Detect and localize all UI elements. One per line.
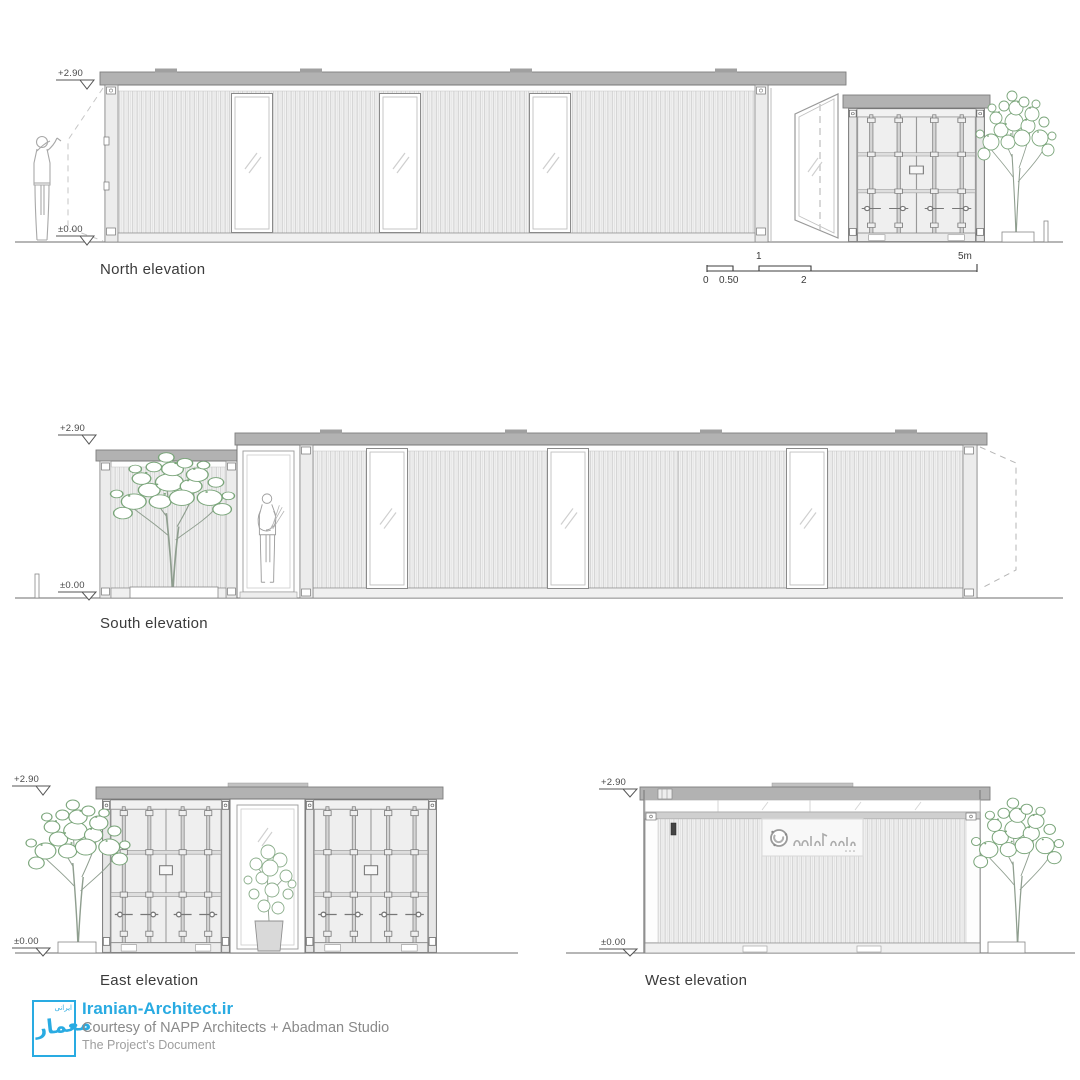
west-lock-detail [671, 823, 676, 835]
west-roof-top-tab [772, 783, 853, 787]
east-container-doors-right [306, 800, 437, 953]
west-level-markers [599, 789, 637, 956]
elevation-linework [0, 0, 1080, 1080]
south-tree-planter [130, 587, 218, 598]
east-level-ground-text: ±0.00 [14, 936, 39, 947]
west-elevation-label: West elevation [645, 972, 747, 989]
west-level-top-text: +2.90 [601, 777, 626, 788]
scale-tick-5m: 5m [958, 251, 972, 262]
north-container-doors [843, 95, 990, 241]
west-tree-planter [988, 942, 1025, 953]
scale-tick-050: 0.50 [719, 275, 738, 286]
north-person-figure [34, 137, 61, 241]
north-window-2 [380, 94, 421, 233]
scale-bar [707, 264, 977, 272]
east-level-markers [12, 786, 50, 956]
north-level-markers [56, 80, 94, 245]
north-bollard [1044, 221, 1048, 242]
west-roof [640, 787, 990, 800]
courtesy-credit: Courtesy of NAPP Architects + Abadman St… [82, 1020, 389, 1036]
south-elevation-drawing [35, 430, 1016, 601]
west-top-rail [645, 812, 980, 819]
east-container-doors-left [103, 800, 230, 953]
south-level-ground-text: ±0.00 [60, 580, 85, 591]
south-level-top-text: +2.90 [60, 423, 85, 434]
east-level-top-text: +2.90 [14, 774, 39, 785]
north-bottom-rail [118, 233, 755, 242]
north-roof [100, 69, 846, 86]
brand-sign [762, 819, 863, 856]
site-title[interactable]: Iranian-Architect.ir [82, 999, 233, 1019]
north-elevation-drawing [34, 69, 1056, 273]
iranian-architect-logo: ایرانی معمار [32, 1000, 76, 1057]
south-window-3 [787, 449, 828, 589]
architectural-elevation-sheet: North elevation South elevation East ele… [0, 0, 1080, 1080]
north-window-1 [232, 94, 273, 233]
north-window-3 [530, 94, 571, 233]
west-elevation-drawing [599, 783, 1064, 956]
east-roof [96, 787, 443, 799]
scale-tick-1: 1 [756, 251, 762, 262]
east-elevation-drawing [12, 783, 443, 956]
logo-subtext: ایرانی [55, 1004, 72, 1012]
east-tree-planter [58, 942, 96, 953]
north-tree [976, 91, 1056, 240]
west-bottom-rail [645, 943, 980, 953]
south-entry-door [237, 445, 300, 598]
document-note: The Project’s Document [82, 1038, 215, 1052]
logo-calligraphy: معمار [34, 1012, 76, 1040]
south-elevation-label: South elevation [100, 615, 208, 632]
north-open-door [771, 88, 838, 241]
east-elevation-label: East elevation [100, 972, 198, 989]
scale-tick-2: 2 [801, 275, 807, 286]
west-tree [972, 798, 1064, 948]
north-tree-planter [1002, 232, 1034, 242]
east-roof-clerestory [228, 783, 308, 787]
south-window-2 [548, 449, 589, 589]
south-bollard [35, 574, 39, 598]
south-level-markers [58, 435, 96, 600]
west-level-ground-text: ±0.00 [601, 937, 626, 948]
south-open-door-dashed [980, 447, 1016, 589]
north-elevation-label: North elevation [100, 261, 205, 278]
scale-tick-0: 0 [703, 275, 709, 286]
south-roof [235, 430, 987, 446]
north-level-ground-text: ±0.00 [58, 224, 83, 235]
north-corrugated-siding [118, 91, 755, 233]
north-level-top-text: +2.90 [58, 68, 83, 79]
north-open-door-swing-dashed [68, 88, 103, 241]
south-window-1 [367, 449, 408, 589]
brand-logo-icon [771, 830, 787, 846]
